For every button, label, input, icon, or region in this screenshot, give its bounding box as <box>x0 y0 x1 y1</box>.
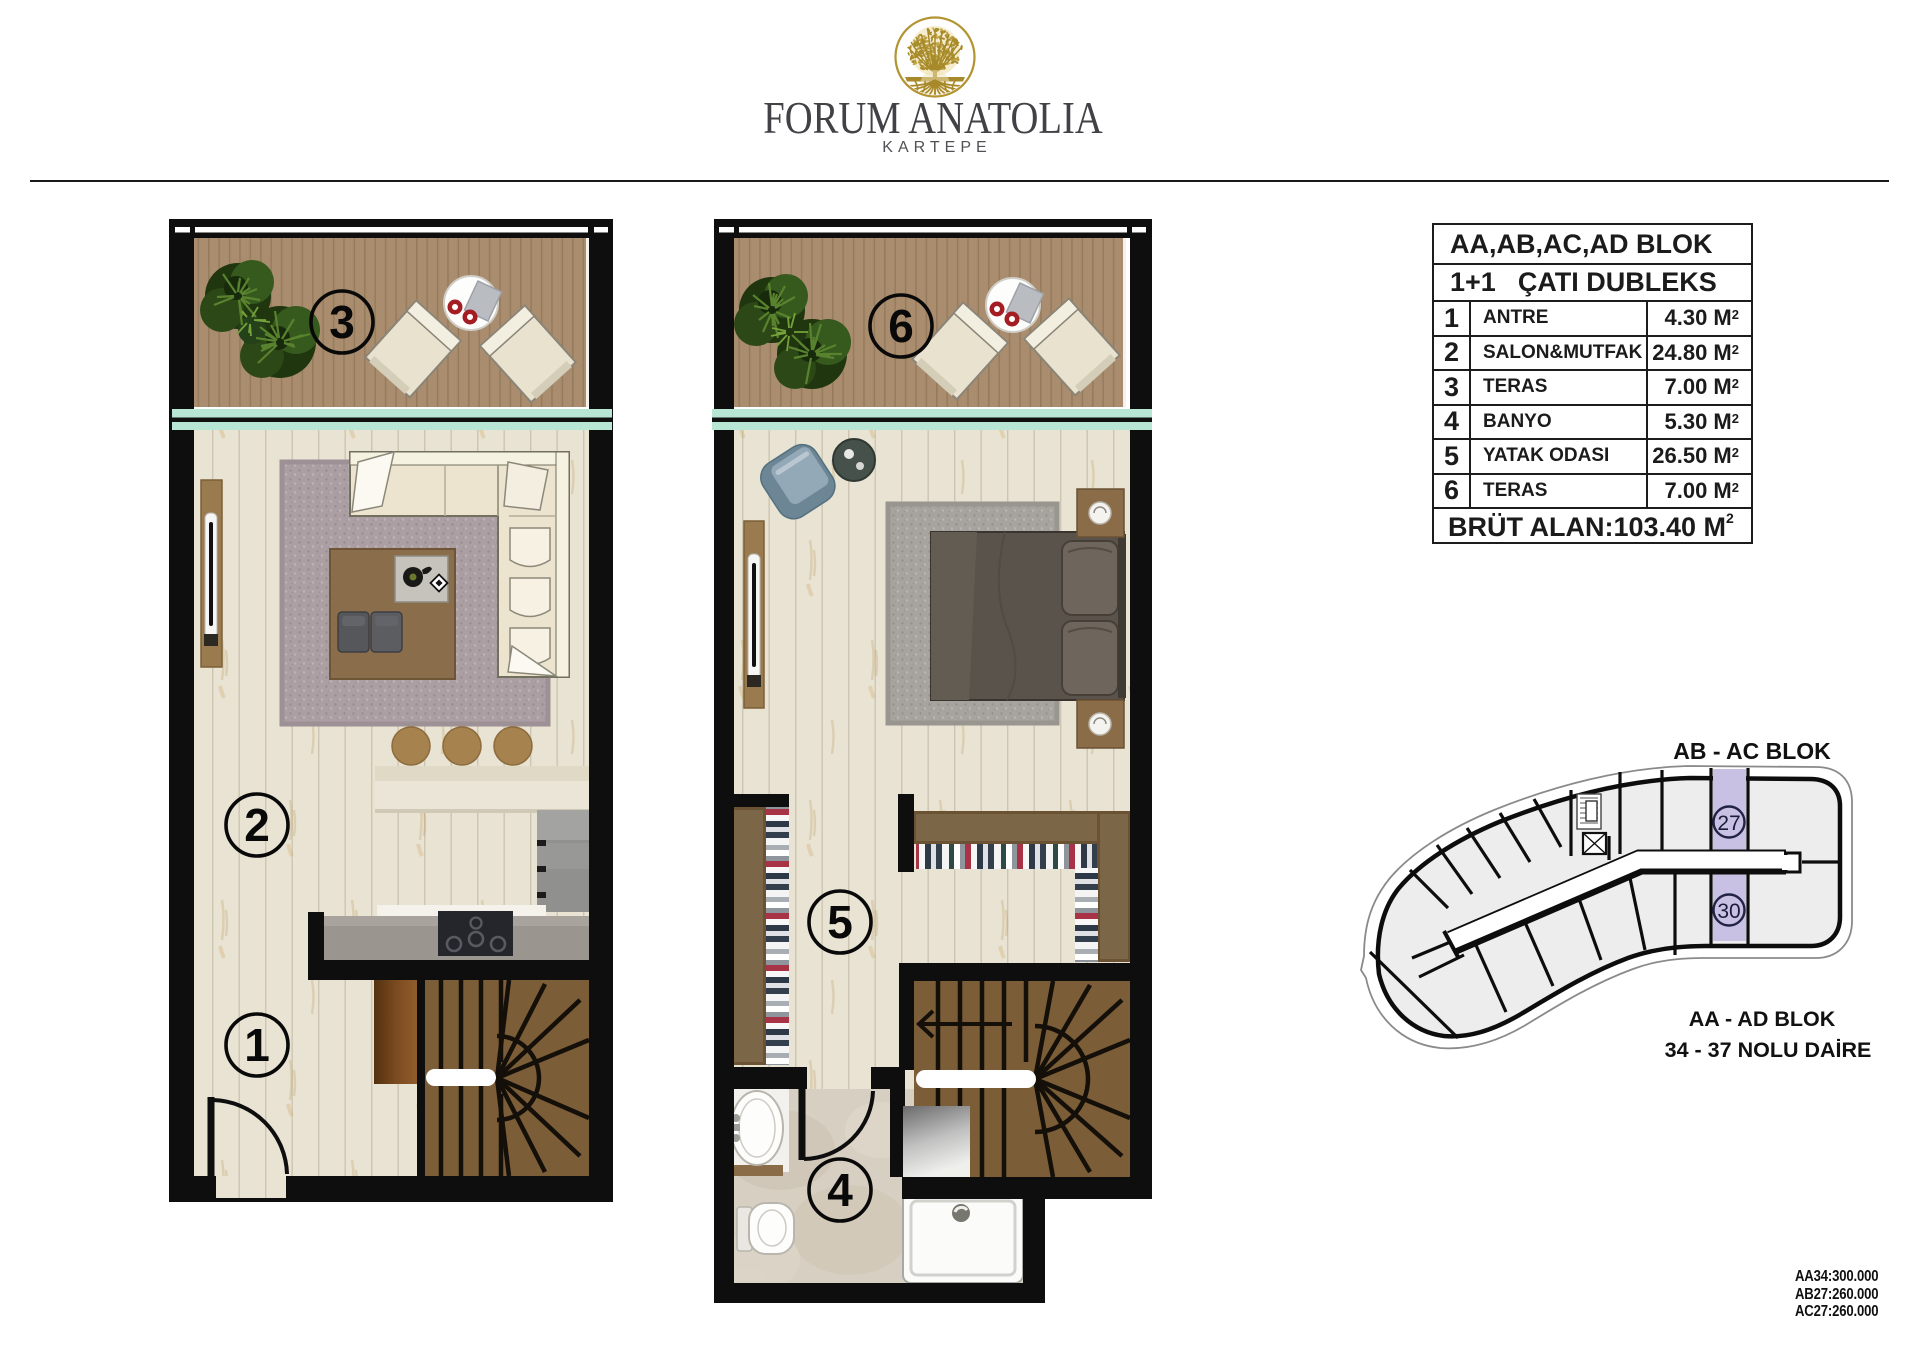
svg-text:34 - 37 NOLU DAİRE: 34 - 37 NOLU DAİRE <box>1665 1038 1872 1062</box>
svg-text:5: 5 <box>827 896 853 948</box>
svg-text:AB - AC BLOK: AB - AC BLOK <box>1673 738 1831 764</box>
svg-text:6: 6 <box>888 300 914 352</box>
svg-text:AA - AD BLOK: AA - AD BLOK <box>1689 1007 1836 1031</box>
svg-text:27: 27 <box>1717 812 1740 835</box>
svg-text:1: 1 <box>244 1019 270 1071</box>
svg-text:2: 2 <box>244 799 270 851</box>
svg-text:4: 4 <box>827 1164 853 1216</box>
svg-text:30: 30 <box>1717 900 1740 923</box>
svg-text:3: 3 <box>329 296 355 348</box>
